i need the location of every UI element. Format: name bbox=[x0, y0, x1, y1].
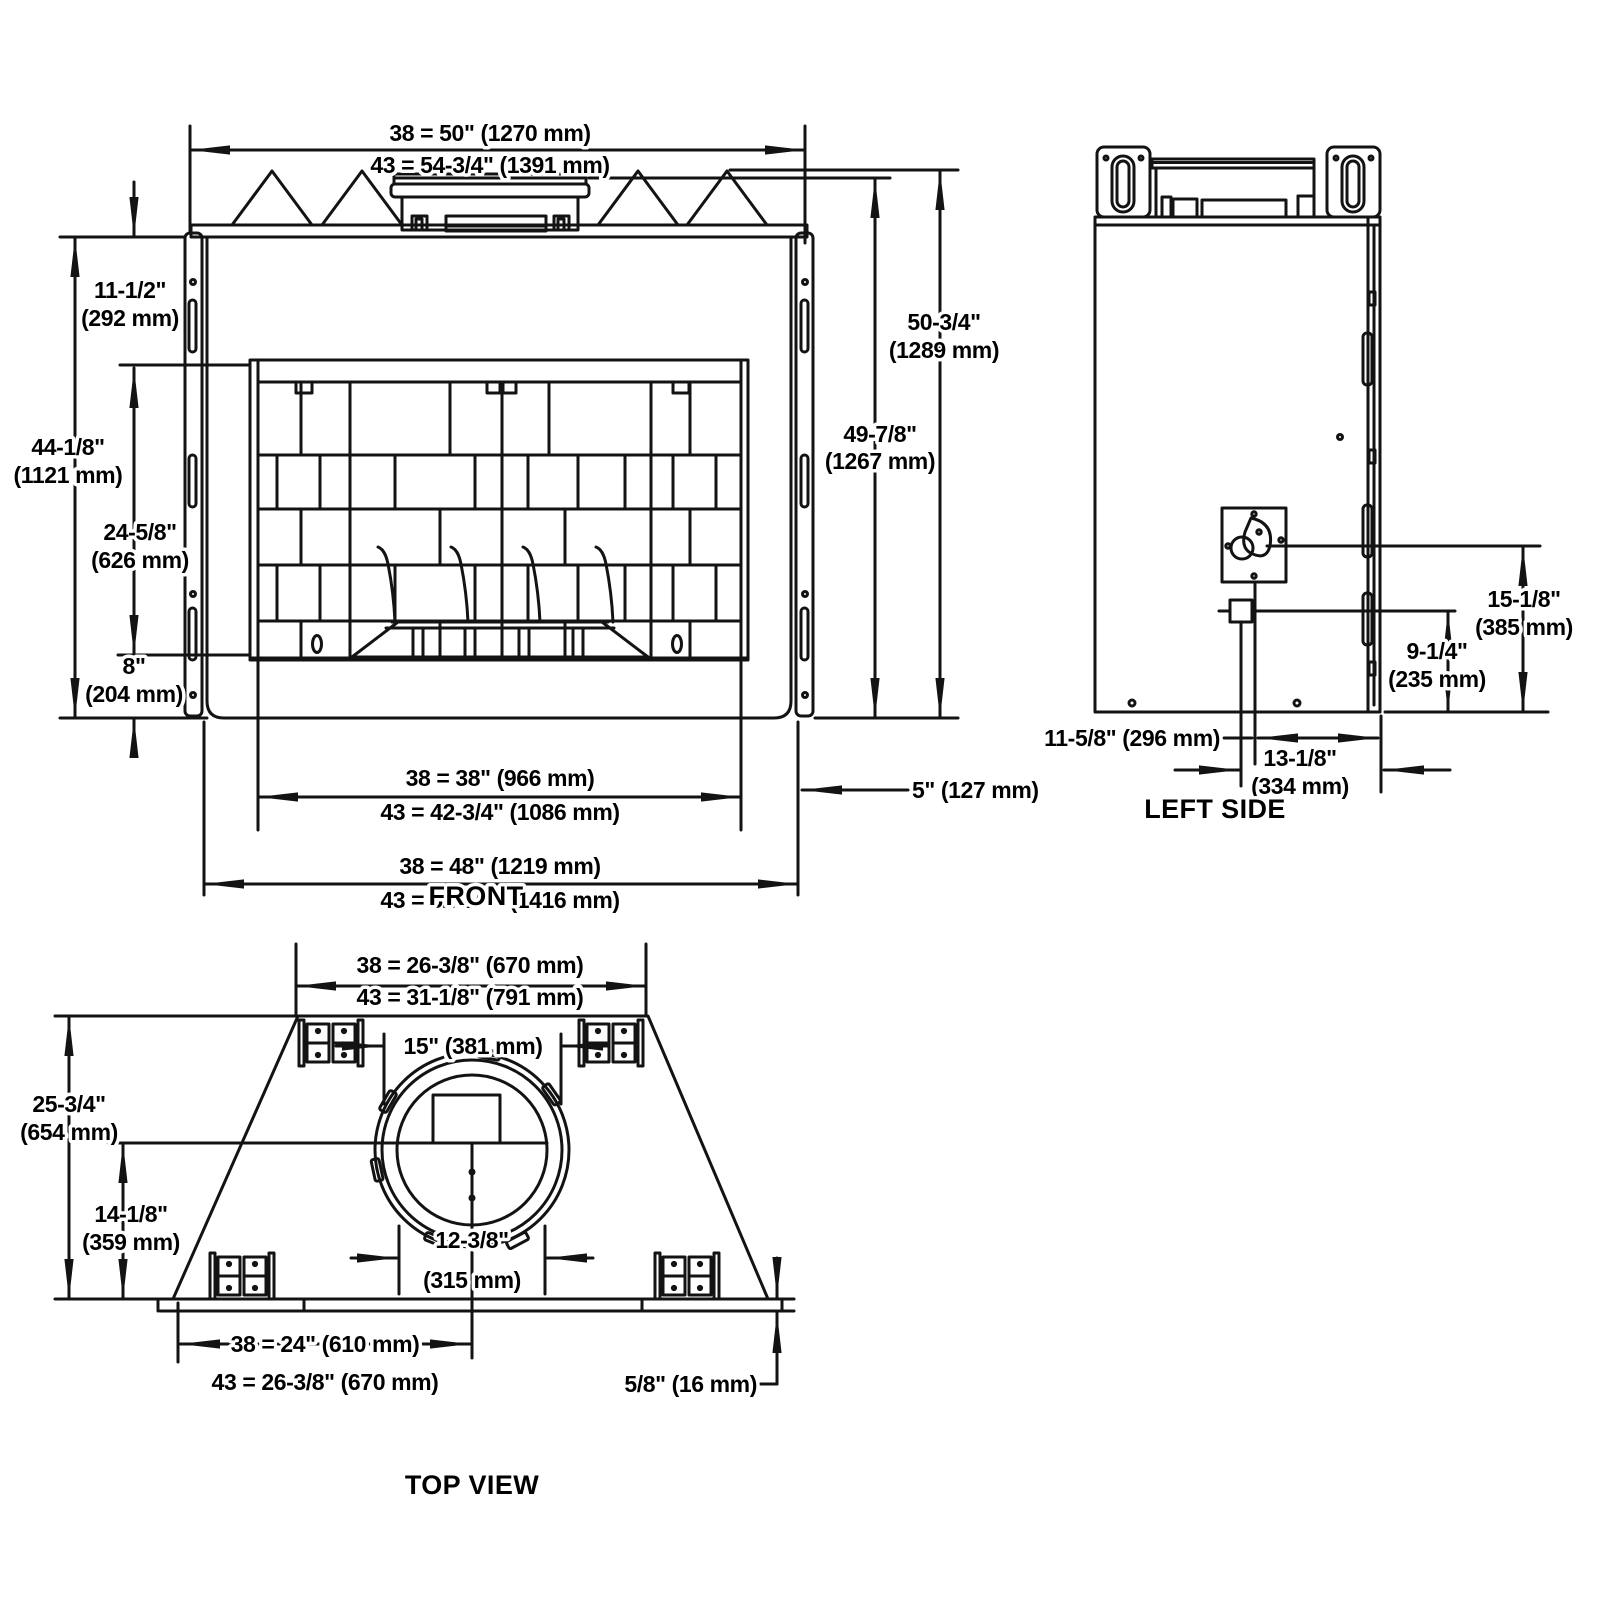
dim-lip: 5/8" (16 mm) bbox=[624, 1371, 757, 1397]
dim-flue-outer: 15" (381 mm) bbox=[403, 1033, 542, 1059]
dim-side-depth: 5" (127 mm) bbox=[912, 777, 1039, 803]
dim-height-flue-in: 50-3/4" bbox=[907, 309, 980, 335]
front-view-title: FRONT bbox=[429, 881, 524, 911]
dim-opening-width-43: 43 = 42-3/4" (1086 mm) bbox=[380, 799, 619, 825]
dim-opening-height-in: 24-5/8" bbox=[103, 519, 176, 545]
dim-height-flue-mm: (1289 mm) bbox=[889, 337, 999, 363]
side-dimension-lines bbox=[1175, 546, 1523, 770]
side-top-bracket-front bbox=[1327, 147, 1380, 217]
dim-opening-width-38: 38 = 38" (966 mm) bbox=[406, 765, 595, 791]
dim-overall-width-43: 43 = 54-3/4" (1391 mm) bbox=[370, 152, 609, 178]
dim-top-height-in: 11-1/2" bbox=[94, 277, 166, 303]
side-top-bracket-back bbox=[1097, 147, 1150, 217]
top-view-title: TOP VIEW bbox=[405, 1470, 539, 1500]
front-view: 38 = 50" (1270 mm) 43 = 54-3/4" (1391 mm… bbox=[14, 120, 1039, 913]
dim-flue-inner-mm: (315 mm) bbox=[423, 1267, 521, 1293]
dim-depth-in: 25-3/4" bbox=[32, 1091, 105, 1117]
dim-top-height-mm: (292 mm) bbox=[81, 305, 179, 331]
dim-half-width-43: 43 = 26-3/8" (670 mm) bbox=[212, 1369, 439, 1395]
brick-liner bbox=[250, 382, 748, 658]
dim-base-width-38: 38 = 48" (1219 mm) bbox=[399, 853, 600, 879]
dim-front-height-in: 44-1/8" bbox=[31, 434, 104, 460]
top-base-strip bbox=[158, 1299, 782, 1311]
fireplace-dimension-diagram: 38 = 50" (1270 mm) 43 = 54-3/4" (1391 mm… bbox=[0, 0, 1600, 1600]
side-front-flange bbox=[1129, 217, 1375, 712]
left-side-view: 15-1/8" (385 mm) 9-1/4" (235 mm) 11-5/8"… bbox=[1044, 147, 1573, 824]
dim-depth-mm: (654 mm) bbox=[20, 1119, 118, 1145]
left-side-view-title: LEFT SIDE bbox=[1144, 794, 1286, 824]
dim-inlet-height-in: 9-1/4" bbox=[1407, 638, 1468, 664]
dim-valve-height-in: 15-1/8" bbox=[1487, 586, 1560, 612]
dim-opening-height-mm: (626 mm) bbox=[91, 547, 189, 573]
flue-collar-tabs bbox=[371, 1049, 561, 1250]
dim-base-height-in: 8" bbox=[123, 653, 146, 679]
dim-back-width-43: 43 = 31-1/8" (791 mm) bbox=[357, 984, 584, 1010]
dim-front-height-mm: (1121 mm) bbox=[14, 462, 123, 488]
dim-back-offset: 11-5/8" (296 mm) bbox=[1044, 725, 1220, 751]
dim-base-height-mm: (204 mm) bbox=[85, 681, 183, 707]
dim-height-body-mm: (1267 mm) bbox=[825, 448, 935, 474]
nailing-flange-right bbox=[796, 233, 813, 716]
nailing-flange-left bbox=[185, 233, 202, 716]
fireplace-body bbox=[207, 237, 791, 718]
side-flue-starter bbox=[1152, 159, 1314, 217]
dim-half-width-38: 38 = 24" (610 mm) bbox=[231, 1331, 420, 1357]
dim-height-body-in: 49-7/8" bbox=[843, 421, 916, 447]
top-view: 38 = 26-3/8" (670 mm) 43 = 31-1/8" (791 … bbox=[20, 944, 794, 1500]
dim-back-width-38: 38 = 26-3/8" (670 mm) bbox=[357, 952, 584, 978]
diagram-canvas: 38 = 50" (1270 mm) 43 = 54-3/4" (1391 mm… bbox=[0, 0, 1600, 1600]
dim-overall-width-38: 38 = 50" (1270 mm) bbox=[389, 120, 590, 146]
dim-flue-inner-in: 12-3/8" bbox=[435, 1227, 508, 1253]
side-body bbox=[1095, 217, 1380, 712]
dim-flue-center-in: 14-1/8" bbox=[94, 1201, 167, 1227]
valve-knob-icon bbox=[1231, 537, 1253, 559]
flue-starter-collar bbox=[391, 174, 589, 231]
dim-flue-center-mm: (359 mm) bbox=[82, 1229, 180, 1255]
top-corner-brackets bbox=[210, 1020, 719, 1299]
dim-inlet-height-mm: (235 mm) bbox=[1388, 666, 1486, 692]
dim-front-offset-in: 13-1/8" bbox=[1263, 745, 1336, 771]
dim-valve-height-mm: (385 mm) bbox=[1475, 614, 1573, 640]
